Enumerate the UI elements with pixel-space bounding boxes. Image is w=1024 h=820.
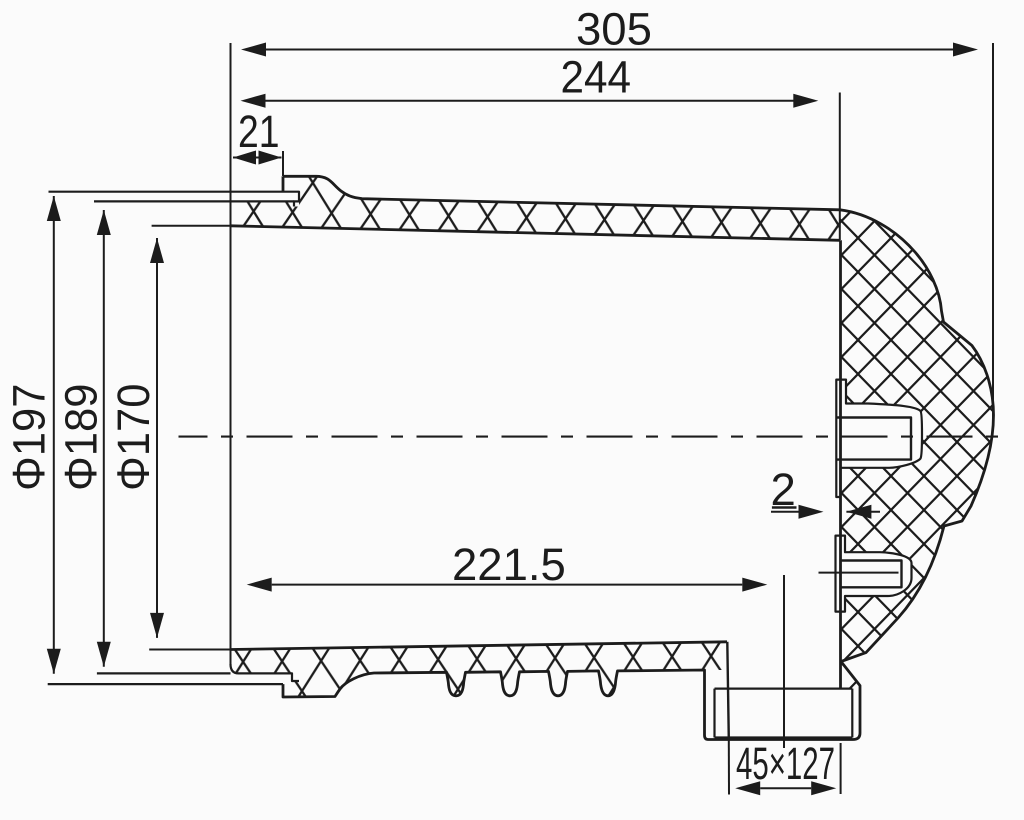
svg-text:244: 244 [561,52,632,103]
svg-text:45×127: 45×127 [736,738,835,789]
svg-text:2: 2 [771,464,796,515]
svg-text:Φ189: Φ189 [56,384,107,492]
svg-text:Φ197: Φ197 [4,384,55,492]
svg-text:Φ170: Φ170 [108,384,159,492]
svg-text:21: 21 [238,106,280,157]
svg-text:221.5: 221.5 [452,539,566,590]
svg-text:305: 305 [576,4,652,55]
